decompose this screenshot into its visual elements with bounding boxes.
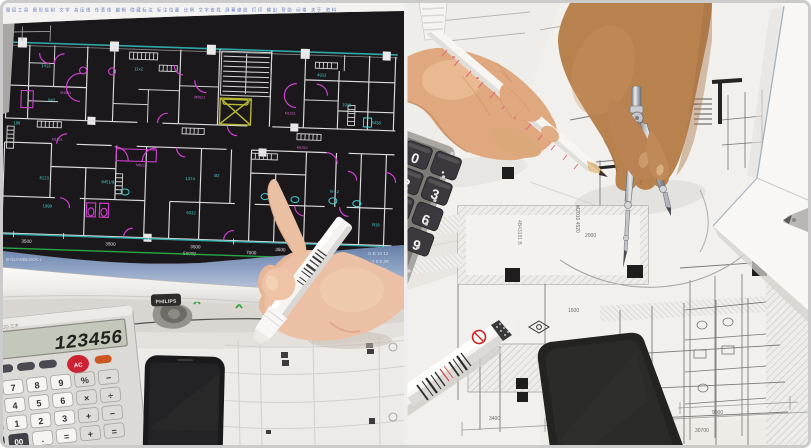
svg-text:%: % — [80, 375, 89, 386]
svg-text:4912: 4912 — [317, 72, 327, 77]
svg-text:3500: 3500 — [190, 244, 201, 249]
svg-text:6123: 6123 — [39, 175, 49, 180]
svg-text:2000: 2000 — [585, 233, 596, 239]
svg-text:4f2: 4f2 — [214, 173, 221, 178]
svg-text:1413: 1413 — [41, 63, 51, 68]
svg-text:3500: 3500 — [105, 241, 116, 246]
svg-text:=: = — [111, 426, 117, 436]
svg-text:M1521: M1521 — [60, 91, 71, 95]
svg-text:7: 7 — [10, 383, 16, 393]
svg-text:3500: 3500 — [21, 239, 32, 244]
svg-text:3500: 3500 — [275, 247, 286, 252]
svg-text:PHILIPS: PHILIPS — [156, 299, 178, 306]
svg-text:6312: 6312 — [186, 210, 196, 215]
svg-text:9: 9 — [58, 378, 64, 388]
svg-text:M821: M821 — [136, 163, 145, 167]
svg-text:M2010 4520: M2010 4520 — [574, 205, 580, 233]
svg-text:7 0 8 JR: 7 0 8 JR — [372, 259, 390, 264]
svg-text:−: − — [106, 373, 112, 383]
svg-text:M1521: M1521 — [52, 138, 63, 142]
svg-text:+: + — [85, 411, 91, 421]
svg-text:30700: 30700 — [695, 428, 709, 434]
svg-text:1500: 1500 — [568, 308, 579, 314]
svg-text:1: 1 — [14, 418, 20, 428]
svg-text:3400: 3400 — [489, 416, 500, 422]
svg-text:4B43181 B: 4B43181 B — [516, 220, 522, 245]
svg-text:5: 5 — [36, 398, 42, 408]
svg-text:3: 3 — [62, 413, 68, 423]
svg-text:×: × — [84, 393, 90, 403]
svg-text:1374: 1374 — [185, 176, 195, 181]
svg-text:6: 6 — [60, 396, 66, 406]
svg-text:1998: 1998 — [43, 203, 53, 208]
svg-text:B-12: B-12 — [330, 189, 340, 194]
svg-text:942: 942 — [48, 97, 56, 102]
svg-text:5438: 5438 — [371, 120, 381, 125]
svg-text:−: − — [109, 408, 115, 418]
svg-text:=: = — [63, 431, 69, 441]
svg-text:8: 8 — [34, 380, 40, 390]
svg-text:9000: 9000 — [712, 410, 723, 416]
svg-text:8451/8: 8451/8 — [101, 179, 115, 184]
svg-text:2: 2 — [38, 416, 44, 426]
svg-text:188: 188 — [13, 120, 21, 125]
svg-text:M0521: M0521 — [194, 95, 205, 99]
svg-text:B NUADBLOCK 1: B NUADBLOCK 1 — [6, 257, 43, 262]
svg-text:M1521: M1521 — [285, 111, 296, 115]
svg-text:AC: AC — [74, 362, 84, 369]
svg-text:11x2: 11x2 — [134, 66, 144, 71]
svg-text:7000: 7000 — [246, 250, 257, 255]
svg-text:M1024: M1024 — [297, 146, 308, 150]
svg-text:1918: 1918 — [342, 102, 352, 107]
svg-text:G B 10 12: G B 10 12 — [368, 251, 389, 256]
svg-text:4: 4 — [12, 401, 18, 411]
svg-text:B18: B18 — [372, 222, 380, 227]
svg-text:+: + — [87, 429, 93, 439]
svg-text:图层工具 图形绘制 文字 高压线 任意线 编辑 隐藏标注 标: 图层工具 图形绘制 文字 高压线 任意线 编辑 隐藏标注 标注位置 比例 文字查… — [6, 7, 337, 14]
